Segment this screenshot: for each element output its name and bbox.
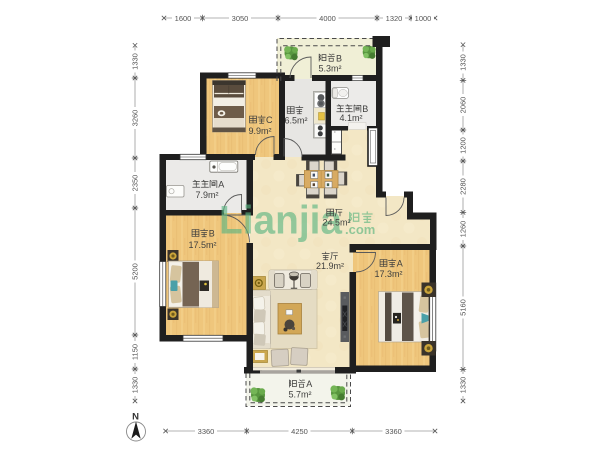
svg-text:24.5m²: 24.5m² xyxy=(322,218,350,228)
svg-text:3360: 3360 xyxy=(385,427,402,436)
svg-text:1330: 1330 xyxy=(459,377,468,394)
svg-text:9.9m²: 9.9m² xyxy=(248,126,271,136)
svg-text:1150: 1150 xyxy=(131,344,140,360)
svg-text:2350: 2350 xyxy=(131,175,140,192)
svg-text:1330: 1330 xyxy=(131,377,140,394)
svg-text:3260: 3260 xyxy=(131,110,140,127)
svg-text:A: A xyxy=(218,180,224,190)
svg-text:N: N xyxy=(132,412,139,423)
svg-text:6.5m²: 6.5m² xyxy=(284,116,307,126)
svg-text:3360: 3360 xyxy=(198,427,215,436)
svg-text:B: B xyxy=(209,229,215,239)
svg-text:5.7m²: 5.7m² xyxy=(288,390,311,400)
svg-text:1600: 1600 xyxy=(175,14,192,23)
svg-text:5200: 5200 xyxy=(131,263,140,280)
svg-text:B: B xyxy=(362,104,368,114)
svg-text:1330: 1330 xyxy=(131,53,140,70)
svg-text:1330: 1330 xyxy=(459,54,468,71)
svg-text:5160: 5160 xyxy=(459,299,468,316)
svg-text:A: A xyxy=(397,259,403,269)
svg-text:4000: 4000 xyxy=(319,14,336,23)
svg-text:A: A xyxy=(306,379,312,389)
svg-text:1320: 1320 xyxy=(386,14,403,23)
svg-text:21.9m²: 21.9m² xyxy=(316,261,344,271)
svg-text:5.3m²: 5.3m² xyxy=(318,63,341,73)
svg-text:17.5m²: 17.5m² xyxy=(188,240,216,250)
svg-text:2060: 2060 xyxy=(459,97,468,114)
svg-text:4250: 4250 xyxy=(291,427,308,436)
svg-text:7.9m²: 7.9m² xyxy=(195,190,218,200)
svg-text:1200: 1200 xyxy=(459,137,468,154)
svg-text:C: C xyxy=(266,115,273,125)
svg-text:4.1m²: 4.1m² xyxy=(339,113,362,123)
svg-text:1260: 1260 xyxy=(459,221,468,238)
svg-text:17.3m²: 17.3m² xyxy=(374,269,402,279)
svg-text:1000: 1000 xyxy=(415,14,432,23)
svg-text:3050: 3050 xyxy=(232,14,249,23)
svg-text:2280: 2280 xyxy=(459,178,468,195)
svg-text:B: B xyxy=(336,53,342,63)
